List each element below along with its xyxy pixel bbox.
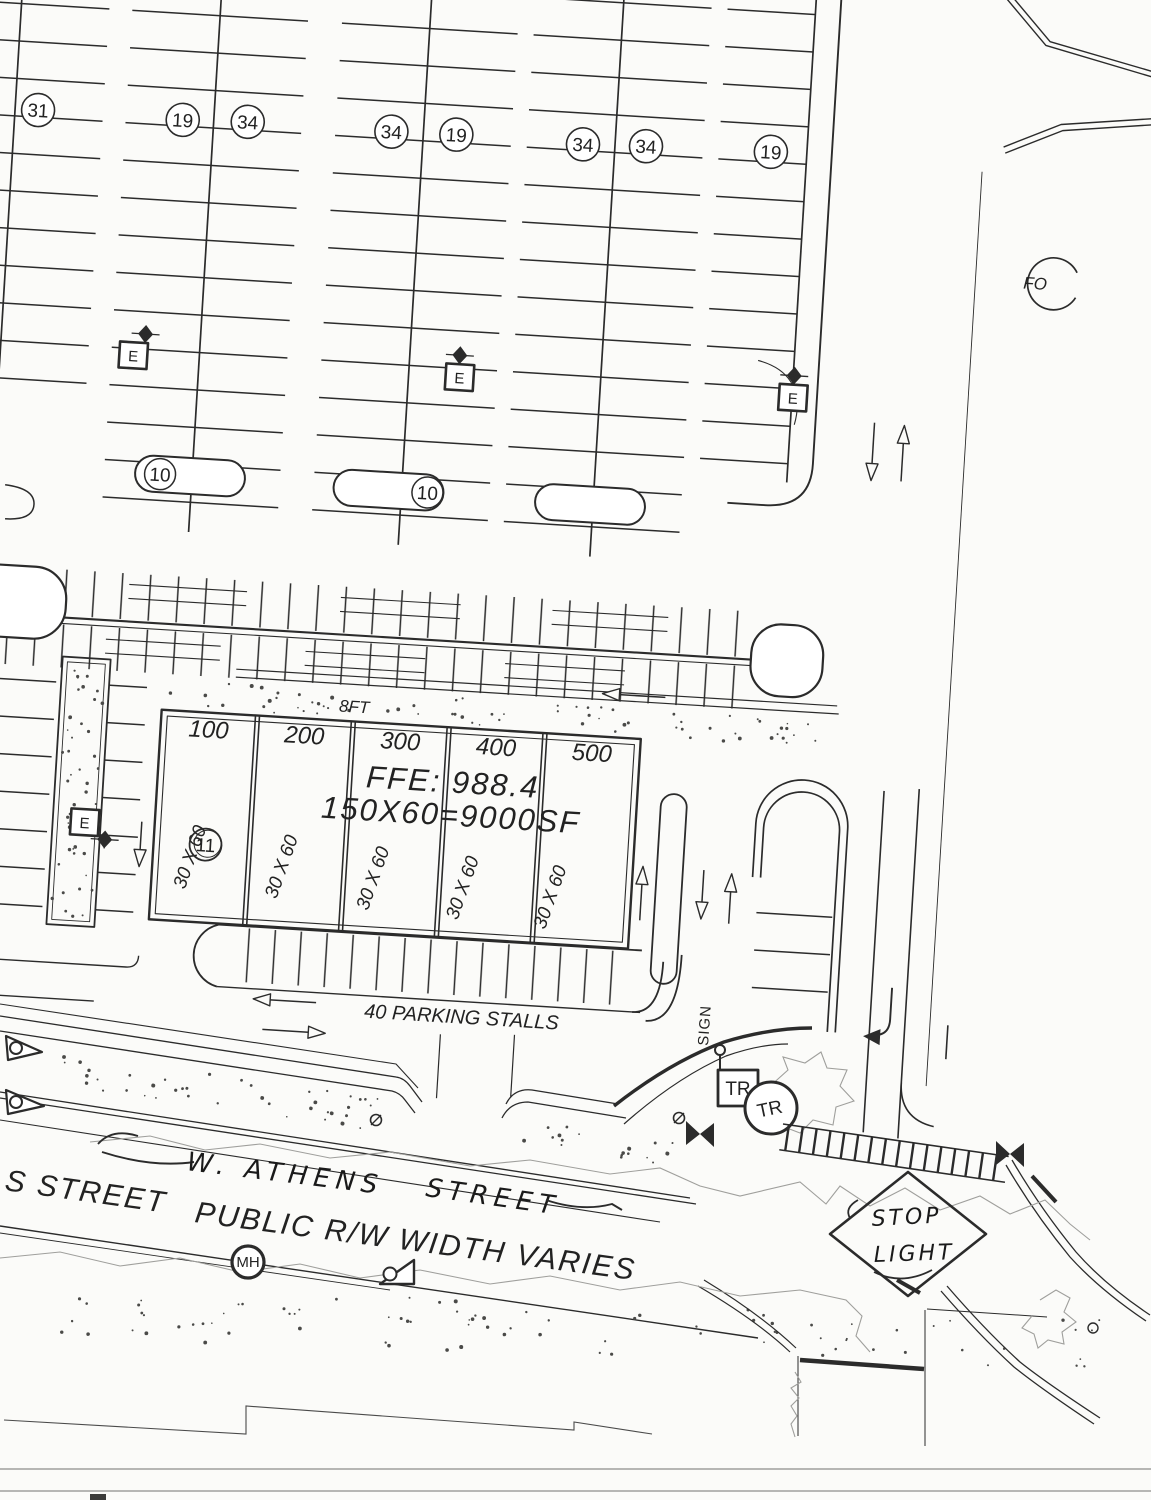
parking-count-badge: 34	[236, 112, 259, 134]
sign-label: SIGN	[695, 1005, 715, 1047]
island-capacity-badge: 10	[149, 465, 171, 487]
anchor-circle-icon	[384, 1268, 397, 1281]
island	[534, 483, 646, 526]
island-capacity-badge: 10	[416, 483, 438, 505]
walkway-width-label: 8FT	[339, 697, 372, 718]
bay-label: 400	[475, 733, 517, 762]
stop-light-line1: STOP	[871, 1203, 942, 1232]
fiber-optic-marker: FO	[1023, 274, 1048, 294]
parking-count-badge: 19	[445, 125, 467, 147]
anchor-circle-icon	[10, 1042, 22, 1054]
parking-count-badge: 34	[635, 137, 658, 159]
island-capacity-badge: 11	[195, 835, 216, 857]
island	[749, 623, 825, 699]
electric-marker: E	[128, 348, 139, 366]
parking-count-badge: 34	[572, 135, 595, 157]
bay-label: 500	[571, 739, 613, 768]
bay-label: 200	[283, 721, 326, 750]
parking-count-badge: 19	[760, 142, 782, 164]
site-plan-drawing: 8FT 100 200 300 400 500 FFE: 988.4 150X6…	[0, 0, 1151, 1500]
scan-mark	[90, 1494, 106, 1500]
manhole-label: MH	[236, 1254, 259, 1271]
stop-light-line2: LIGHT	[873, 1240, 955, 1268]
scanned-site-plan: 8FT 100 200 300 400 500 FFE: 988.4 150X6…	[0, 0, 1151, 1500]
parking-count-badge: 31	[27, 100, 49, 122]
electric-marker: E	[787, 390, 798, 408]
parking-count-badge: 19	[171, 110, 193, 132]
parking-count-badge: 34	[380, 122, 403, 144]
electric-marker: E	[79, 815, 90, 833]
electric-marker: E	[454, 370, 465, 388]
bay-label: 300	[379, 727, 421, 756]
bay-label: 100	[188, 715, 230, 744]
anchor-circle-icon	[10, 1096, 22, 1108]
